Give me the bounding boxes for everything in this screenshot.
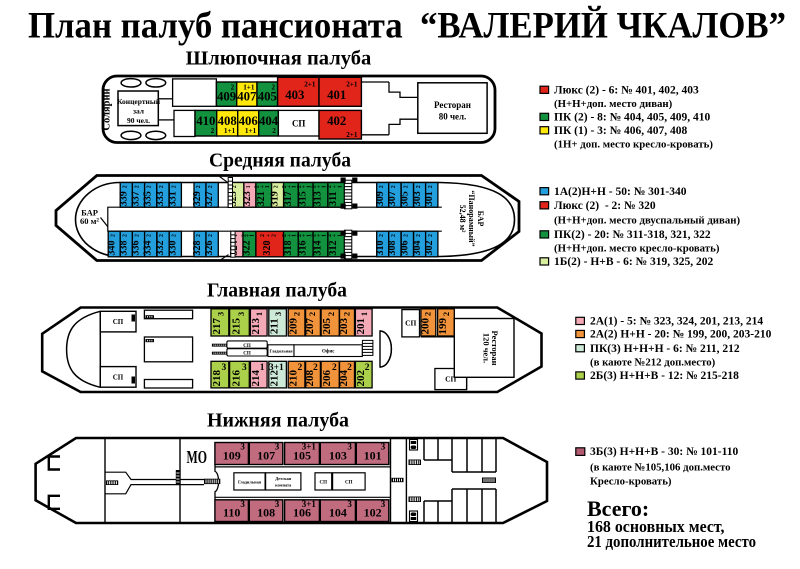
svg-text:“Панорамный”: “Панорамный” [467,190,476,246]
svg-text:2: 2 [347,363,352,373]
svg-text:(Н+Н+доп. место диван): (Н+Н+доп. место диван) [554,98,673,110]
svg-text:СП: СП [113,373,124,381]
svg-text:3: 3 [275,442,280,452]
svg-text:ПК (1) - 3: № 406, 407, 408: ПК (1) - 3: № 406, 407, 408 [554,125,688,137]
svg-text:120 чел.: 120 чел. [482,333,492,363]
svg-text:407: 407 [237,90,257,104]
svg-text:306: 306 [399,241,410,256]
svg-text:2: 2 [110,234,116,237]
svg-text:217: 217 [211,317,223,334]
svg-text:2: 2 [147,185,153,188]
svg-text:Ресторан: Ресторан [434,100,471,110]
svg-text:2+1: 2+1 [304,81,316,89]
svg-text:(Н+Н+доп. место кресло-кровать: (Н+Н+доп. место кресло-кровать) [554,243,720,255]
svg-text:312: 312 [328,241,339,256]
svg-text:СП: СП [243,352,251,357]
svg-text:328: 328 [192,241,203,256]
svg-text:СП: СП [405,319,416,328]
svg-text:309: 309 [375,191,386,206]
svg-text:334: 334 [143,241,154,256]
svg-text:319: 319 [270,191,281,206]
svg-text:2: 2 [135,185,141,188]
svg-text:Офис: Офис [322,350,335,355]
svg-text:402: 402 [327,114,346,128]
svg-text:2: 2 [379,234,385,237]
svg-text:90 чел.: 90 чел. [127,116,150,125]
svg-text:2: 2 [196,234,202,237]
svg-text:322: 322 [241,241,252,256]
svg-text:110: 110 [223,506,240,520]
svg-text:3: 3 [216,312,226,316]
svg-text:комната: комната [275,482,292,487]
svg-text:215: 215 [230,317,242,334]
svg-text:1: 1 [250,234,256,237]
svg-text:2: 2 [147,234,153,237]
svg-text:301: 301 [424,191,435,206]
svg-text:ПК(3) Н+Н+Н - 6: № 211, 212: ПК(3) Н+Н+Н - 6: № 211, 212 [590,343,740,355]
svg-text:321: 321 [256,191,267,206]
svg-text:2: 2 [416,234,422,237]
svg-text:2: 2 [428,234,434,237]
svg-text:327: 327 [204,191,215,206]
svg-text:Средняя палуба: Средняя палуба [209,149,351,171]
svg-text:1Б(2) - Н+В - 6: № 319, 325, 2: 1Б(2) - Н+В - 6: № 319, 325, 202 [554,256,713,268]
svg-text:СП: СП [113,318,124,326]
svg-text:2: 2 [403,234,409,237]
svg-text:Концертный: Концертный [117,97,161,106]
svg-text:1: 1 [246,185,252,188]
svg-text:323: 323 [242,191,253,206]
svg-text:329: 329 [192,191,203,206]
svg-text:1: 1 [359,312,369,316]
svg-text:2: 2 [313,363,318,373]
svg-text:409: 409 [217,90,236,104]
svg-text:2: 2 [171,234,177,237]
svg-text:2: 2 [231,84,235,92]
svg-text:Нижняя палуба: Нижняя палуба [207,409,349,431]
svg-text:2: 2 [208,185,214,188]
svg-text:205: 205 [321,317,333,334]
svg-text:107: 107 [257,449,275,463]
svg-text:209: 209 [288,317,300,334]
svg-text:2: 2 [403,185,409,188]
svg-text:3+1: 3+1 [269,363,284,373]
svg-text:102: 102 [364,506,382,520]
svg-text:60 м²: 60 м² [80,216,99,226]
svg-text:2: 2 [272,127,276,135]
svg-text:207: 207 [304,317,316,334]
svg-text:101: 101 [364,449,382,463]
svg-text:2: 2 [171,185,177,188]
svg-text:2: 2 [423,312,433,316]
svg-text:103: 103 [329,449,347,463]
svg-text:2: 2 [122,185,128,188]
svg-text:Кресло-кровать): Кресло-кровать) [590,475,672,487]
svg-text:316: 316 [298,241,309,256]
svg-text:(Н+Н+доп. место двуспальный ди: (Н+Н+доп. место двуспальный диван) [554,215,740,227]
svg-text:305: 305 [399,191,410,206]
svg-text:3: 3 [236,312,246,316]
svg-text:МО: МО [187,447,208,467]
svg-text:ПК (2) - 8: № 404, 405, 409, 4: ПК (2) - 8: № 404, 405, 409, 410 [554,112,711,124]
svg-text:2: 2 [441,312,451,316]
svg-text:339: 339 [118,191,129,206]
svg-text:3: 3 [347,442,352,452]
svg-text:3: 3 [381,499,386,509]
svg-text:335: 335 [143,191,154,206]
svg-text:2: 2 [122,234,128,237]
svg-text:2: 2 [298,363,303,373]
svg-text:2+1: 2+1 [346,131,358,139]
svg-text:3: 3 [221,363,226,373]
svg-text:201: 201 [355,318,367,335]
svg-text:1+1: 1+1 [224,127,236,135]
svg-text:313: 313 [313,191,324,206]
svg-text:Шлюпочная палуба: Шлюпочная палуба [186,48,372,70]
svg-text:СП: СП [292,119,306,129]
svg-text:308: 308 [387,241,398,256]
svg-text:Детская: Детская [275,476,292,481]
svg-text:2Б(3) Н+Н+В - 12: № 215-218: 2Б(3) Н+Н+В - 12: № 215-218 [590,370,739,382]
svg-text:3: 3 [381,442,386,452]
svg-text:Главная палуба: Главная палуба [207,280,347,302]
svg-text:СП: СП [243,344,251,349]
svg-text:2: 2 [379,185,385,188]
svg-text:340: 340 [106,241,117,256]
svg-text:203: 203 [338,317,350,334]
svg-text:2: 2 [211,127,215,135]
svg-text:2: 2 [307,312,317,316]
svg-text:303: 303 [412,191,423,206]
svg-text:311: 311 [328,191,339,205]
svg-text:СП: СП [320,480,328,485]
svg-text:(в каюте №105,106 доп.место: (в каюте №105,106 доп.место [590,461,731,473]
svg-text:СП: СП [345,480,353,485]
svg-text:2: 2 [428,185,434,188]
svg-text:338: 338 [118,241,129,256]
svg-text:3: 3 [240,499,245,509]
svg-text:2А(2) Н+Н - 20: № 199, 200, 20: 2А(2) Н+Н - 20: № 199, 200, 203-210 [590,329,772,341]
svg-text:401: 401 [327,88,346,102]
svg-text:213: 213 [250,317,262,334]
svg-text:200: 200 [419,317,431,334]
svg-text:80 чел.: 80 чел. [439,112,467,122]
svg-text:2: 2 [272,234,278,237]
svg-text:304: 304 [412,241,423,256]
svg-text:2А(1) - 5: № 323, 324, 201, 21: 2А(1) - 5: № 323, 324, 201, 213, 214 [590,316,763,328]
svg-text:2: 2 [341,312,351,316]
svg-text:2: 2 [292,312,302,316]
svg-text:337: 337 [131,191,142,206]
svg-text:2+1: 2+1 [346,81,358,89]
svg-text:108: 108 [257,506,275,520]
svg-text:2: 2 [196,185,202,188]
svg-text:2: 2 [391,185,397,188]
svg-text:БАР: БАР [476,211,485,227]
svg-text:2: 2 [274,185,280,188]
svg-text:2: 2 [332,363,337,373]
svg-text:1+1: 1+1 [245,127,257,135]
svg-text:1: 1 [254,312,264,316]
svg-text:336: 336 [131,241,142,256]
svg-text:331: 331 [167,191,178,206]
svg-text:302: 302 [424,241,435,256]
svg-text:2: 2 [159,185,165,188]
svg-text:403: 403 [285,88,304,102]
svg-text:3: 3 [275,499,280,509]
svg-text:ПК(2) - 20: № 311-318, 321, 32: ПК(2) - 20: № 311-318, 321, 322 [554,229,711,241]
svg-text:320: 320 [262,241,273,256]
svg-text:332: 332 [155,241,166,256]
svg-text:199: 199 [437,317,449,334]
svg-text:Люкс (2) - 6: № 401, 402, 403: Люкс (2) - 6: № 401, 402, 403 [554,85,699,97]
svg-text:1А(2)Н+Н - 50: № 301-340: 1А(2)Н+Н - 50: № 301-340 [554,186,687,198]
svg-text:330: 330 [167,241,178,256]
svg-text:(1Н+ доп. место кресло-кровать: (1Н+ доп. место кресло-кровать) [554,139,713,151]
svg-text:1: 1 [265,185,271,188]
svg-text:314: 314 [313,241,324,256]
svg-text:52,48 м²: 52,48 м² [458,205,467,233]
svg-text:333: 333 [155,191,166,206]
svg-text:План палуб пансионата “ВАЛЕРИ: План палуб пансионата “ВАЛЕРИЙ ЧКАЛОВ” [28,5,786,46]
svg-text:318: 318 [283,241,294,256]
svg-text:зал: зал [133,107,145,116]
svg-text:2: 2 [135,234,141,237]
svg-text:3: 3 [240,442,245,452]
svg-text:211: 211 [269,318,281,334]
svg-text:21 дополнительное место: 21 дополнительное место [587,532,756,551]
svg-text:2: 2 [416,185,422,188]
svg-text:1+1: 1+1 [243,84,255,92]
svg-text:307: 307 [387,191,398,206]
svg-text:3+1: 3+1 [302,499,317,509]
svg-text:317: 317 [283,191,294,206]
svg-text:3Б(3) Н+Н+В - 30: № 101-110: 3Б(3) Н+Н+В - 30: № 101-110 [590,446,738,458]
svg-text:Люкс (2) - 2: № 320: Люкс (2) - 2: № 320 [554,200,656,212]
svg-text:2: 2 [365,363,370,373]
svg-text:216: 216 [230,370,242,387]
svg-text:405: 405 [258,90,277,104]
svg-text:Гладильная: Гладильная [269,349,293,354]
svg-text:109: 109 [223,449,241,463]
svg-text:2: 2 [159,234,165,237]
svg-text:104: 104 [329,506,347,520]
svg-text:310: 310 [375,241,386,256]
svg-text:(в каюте №212 доп.место): (в каюте №212 доп.место) [590,357,716,369]
svg-text:1: 1 [260,363,265,373]
svg-text:2: 2 [326,312,336,316]
svg-text:3: 3 [347,499,352,509]
svg-text:2: 2 [272,84,276,92]
svg-text:3: 3 [273,312,283,316]
svg-text:Солярий: Солярий [102,88,113,130]
svg-text:326: 326 [204,241,215,256]
svg-text:3: 3 [242,363,247,373]
svg-text:2: 2 [208,234,214,237]
svg-text:3+1: 3+1 [302,442,317,452]
svg-text:Гладильная: Гладильная [238,479,262,484]
svg-text:1: 1 [338,185,344,188]
svg-text:2: 2 [391,234,397,237]
svg-text:315: 315 [298,191,309,206]
